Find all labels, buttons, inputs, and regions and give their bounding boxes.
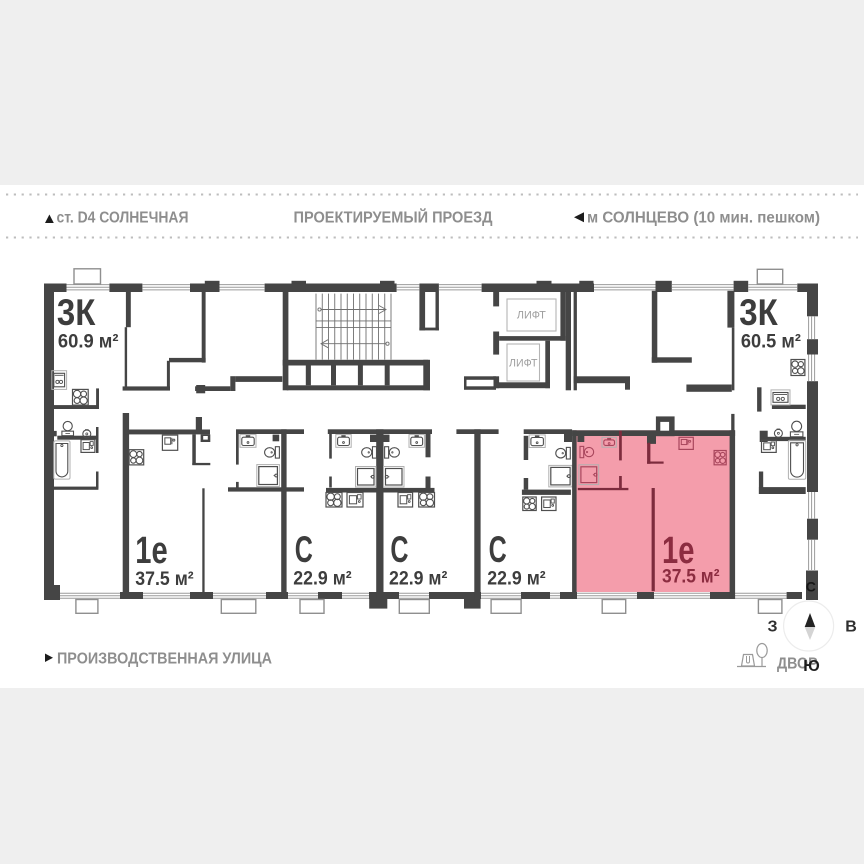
svg-text:С: С [489,529,507,570]
svg-text:В: В [845,619,857,636]
svg-text:22.9 м²: 22.9 м² [389,568,448,590]
svg-text:1е: 1е [135,530,167,572]
svg-text:С: С [390,529,408,570]
svg-text:22.9 м²: 22.9 м² [487,568,546,590]
svg-text:3К: 3К [57,292,96,333]
svg-text:ПРОИЗВОДСТВЕННАЯ УЛИЦА: ПРОИЗВОДСТВЕННАЯ УЛИЦА [57,651,272,668]
svg-text:ЛИФТ: ЛИФТ [517,309,546,321]
svg-text:37.5 м²: 37.5 м² [135,568,194,590]
svg-text:ПРОЕКТИРУЕМЫЙ ПРОЕЗД: ПРОЕКТИРУЕМЫЙ ПРОЕЗД [294,209,493,227]
svg-text:С: С [806,579,816,595]
svg-text:60.5 м²: 60.5 м² [741,331,801,353]
svg-text:ст. D4 СОЛНЕЧНАЯ: ст. D4 СОЛНЕЧНАЯ [57,210,189,227]
svg-text:С: С [295,529,313,570]
svg-text:22.9 м²: 22.9 м² [293,568,352,590]
svg-text:м СОЛНЦЕВО (10 мин. пешком): м СОЛНЦЕВО (10 мин. пешком) [587,210,820,227]
svg-text:Ю: Ю [803,658,820,675]
svg-text:37.5 м²: 37.5 м² [662,567,720,588]
svg-text:3К: 3К [739,292,778,333]
svg-text:З: З [767,619,777,636]
svg-text:60.9 м²: 60.9 м² [58,331,119,353]
svg-text:ЛИФТ: ЛИФТ [509,357,538,369]
